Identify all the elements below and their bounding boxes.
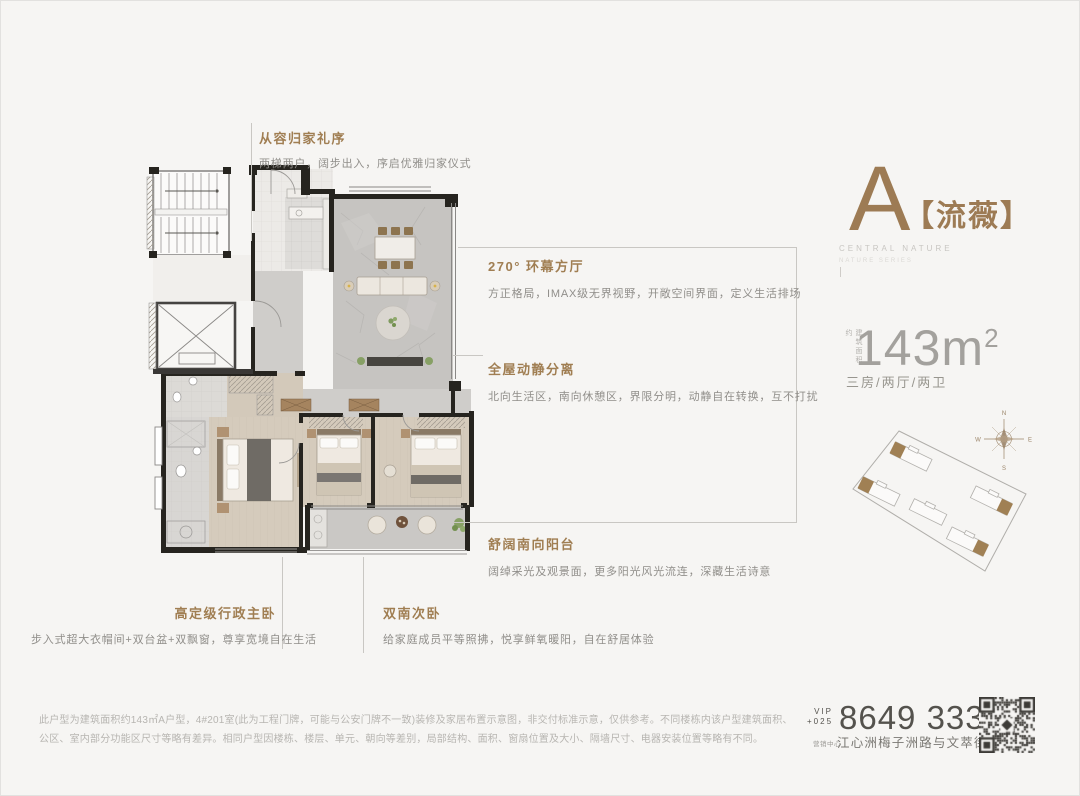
callout-title: 全屋动静分离 (488, 359, 818, 378)
callout-desc: 步入式超大衣帽间+双台盆+双飘窗，尊享宽境自在生活 (31, 631, 276, 647)
qr-code (979, 697, 1035, 753)
svg-text:E: E (1028, 438, 1032, 444)
dining-table (375, 227, 415, 269)
svg-text:S: S (1002, 466, 1006, 472)
callout-desc: 方正格局，IMAX级无界视野，开敞空间界面，定义生活排场 (488, 285, 801, 301)
tick-line (840, 267, 841, 277)
callout-desc: 阔绰采光及观景面，更多阳光风光流连，深藏生活诗意 (488, 563, 771, 579)
callout-desc: 北向生活区，南向休憩区，界限分明，动静自在转换，互不打扰 (488, 388, 818, 404)
leader-line-second (363, 557, 364, 653)
stairwell (147, 171, 229, 255)
disclaimer-line-2: 公区、室内部分功能区尺寸等略有差异。相同户型因楼栋、楼层、单元、朝向等差别，局部… (39, 730, 793, 749)
callout-title: 舒阔南向阳台 (488, 534, 771, 553)
callout-zoning: 全屋动静分离 北向生活区，南向休憩区，界限分明，动静自在转换，互不打扰 (488, 359, 818, 404)
compass-icon: N E S W (975, 411, 1032, 472)
callout-desc: 给家庭成员平等照拂，悦享鲜氧暖阳，自在舒居体验 (383, 631, 654, 647)
callout-title: 双南次卧 (383, 603, 654, 622)
leader-line-balcony (453, 522, 796, 523)
leader-line-living (458, 247, 796, 248)
floorplan-poster: 从容归家礼序 两梯两户，阔步出入，序启优雅归家仪式 270° 环幕方厅 方正格局… (0, 0, 1080, 796)
bay-window (155, 427, 162, 465)
callout-desc: 两梯两户，阔步出入，序启优雅归家仪式 (259, 155, 471, 171)
callout-second: 双南次卧 给家庭成员平等照拂，悦享鲜氧暖阳，自在舒居体验 (383, 603, 654, 647)
shared-lobby (153, 255, 253, 301)
area-value: 143m2 (855, 323, 1000, 373)
svg-text:W: W (975, 438, 981, 444)
elevator (149, 303, 235, 369)
layout-spec: 三房/两厅/两卫 (846, 372, 947, 391)
disclaimer: 此户型为建筑面积约143㎡A户型，4#201室(此为工程门牌，可能与公安门牌不一… (39, 711, 793, 749)
unit-letter: A (849, 153, 910, 245)
site-plan: N E S W (839, 399, 1049, 589)
project-en-subtitle: NATURE SERIES (839, 258, 913, 264)
callout-title: 高定级行政主卧 (31, 603, 276, 622)
callout-entry: 从容归家礼序 两梯两户，阔步出入，序启优雅归家仪式 (259, 128, 471, 171)
living-rug (376, 306, 410, 340)
vip-label: VIP +025 (807, 707, 833, 727)
callout-living: 270° 环幕方厅 方正格局，IMAX级无界视野，开敞空间界面，定义生活排场 (488, 256, 801, 301)
callout-balcony: 舒阔南向阳台 阔绰采光及观景面，更多阳光风光流连，深藏生活诗意 (488, 534, 771, 579)
callout-title: 从容归家礼序 (259, 128, 471, 147)
site-buildings (857, 439, 1014, 557)
master-bed (217, 427, 302, 513)
tv-cabinet (357, 357, 433, 366)
bay-window (155, 477, 162, 509)
leader-line-entry (251, 123, 252, 241)
balcony-floor (307, 507, 469, 549)
callout-title: 270° 环幕方厅 (488, 256, 801, 275)
floor-plan (141, 151, 501, 611)
svg-text:N: N (1002, 411, 1006, 417)
unit-name: 【流薇】 (904, 191, 1032, 235)
sofa (344, 277, 440, 295)
area-superscript: 2 (984, 323, 999, 353)
leader-line-zoning (453, 355, 483, 356)
callout-master: 高定级行政主卧 步入式超大衣帽间+双台盆+双飘窗，尊享宽境自在生活 (31, 603, 276, 647)
project-en-title: CENTRAL NATURE (839, 244, 953, 253)
walk-in-closet (229, 375, 273, 393)
disclaimer-line-1: 此户型为建筑面积约143㎡A户型，4#201室(此为工程门牌，可能与公安门牌不一… (39, 711, 793, 730)
